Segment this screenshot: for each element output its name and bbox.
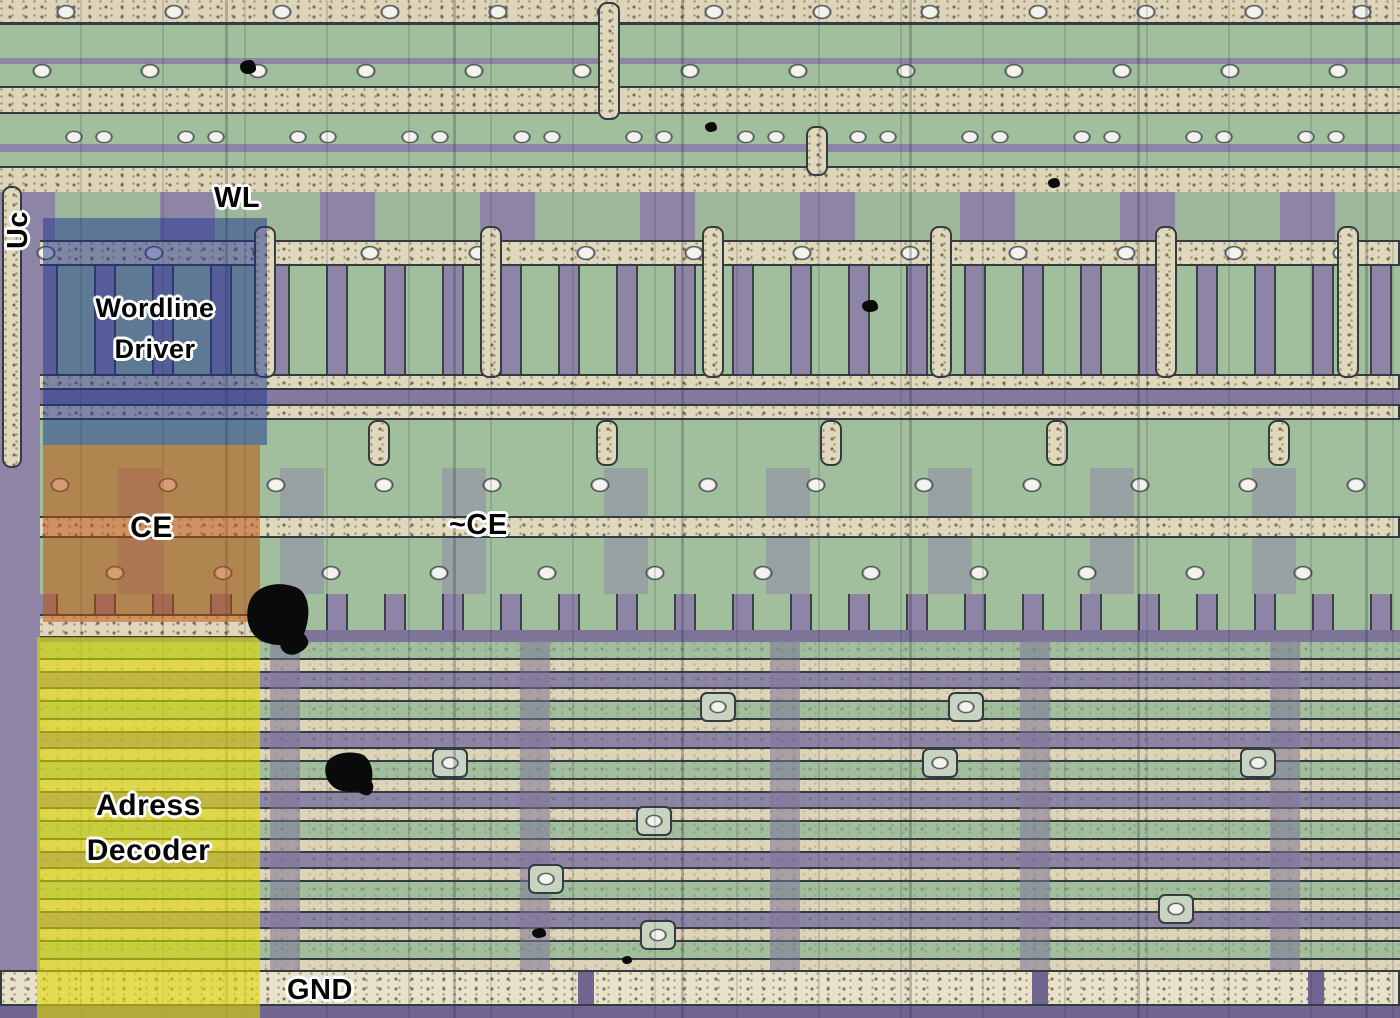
die-photo: Wordline Driver CE Adress Decoder Uc WL … [0, 0, 1400, 1018]
dust-speck [1048, 178, 1060, 188]
label-not-ce: ~CE [449, 509, 508, 542]
region-label-chip-enable: CE [43, 505, 260, 550]
region-label-address-decoder: Adress Decoder [37, 783, 260, 873]
dust-speck [705, 122, 717, 132]
region-label-wordline-driver: Wordline Driver [43, 288, 267, 369]
dust-speck [862, 300, 878, 312]
region-wordline-driver: Wordline Driver [43, 218, 267, 445]
dust-speck [532, 928, 546, 938]
label-uc: Uc [2, 200, 34, 260]
region-address-decoder: Adress Decoder [37, 637, 260, 1018]
dust-speck [622, 956, 632, 964]
label-gnd: GND [287, 974, 353, 1007]
region-chip-enable: CE [43, 445, 260, 622]
dust-speck [240, 60, 256, 74]
label-wl: WL [214, 182, 260, 215]
